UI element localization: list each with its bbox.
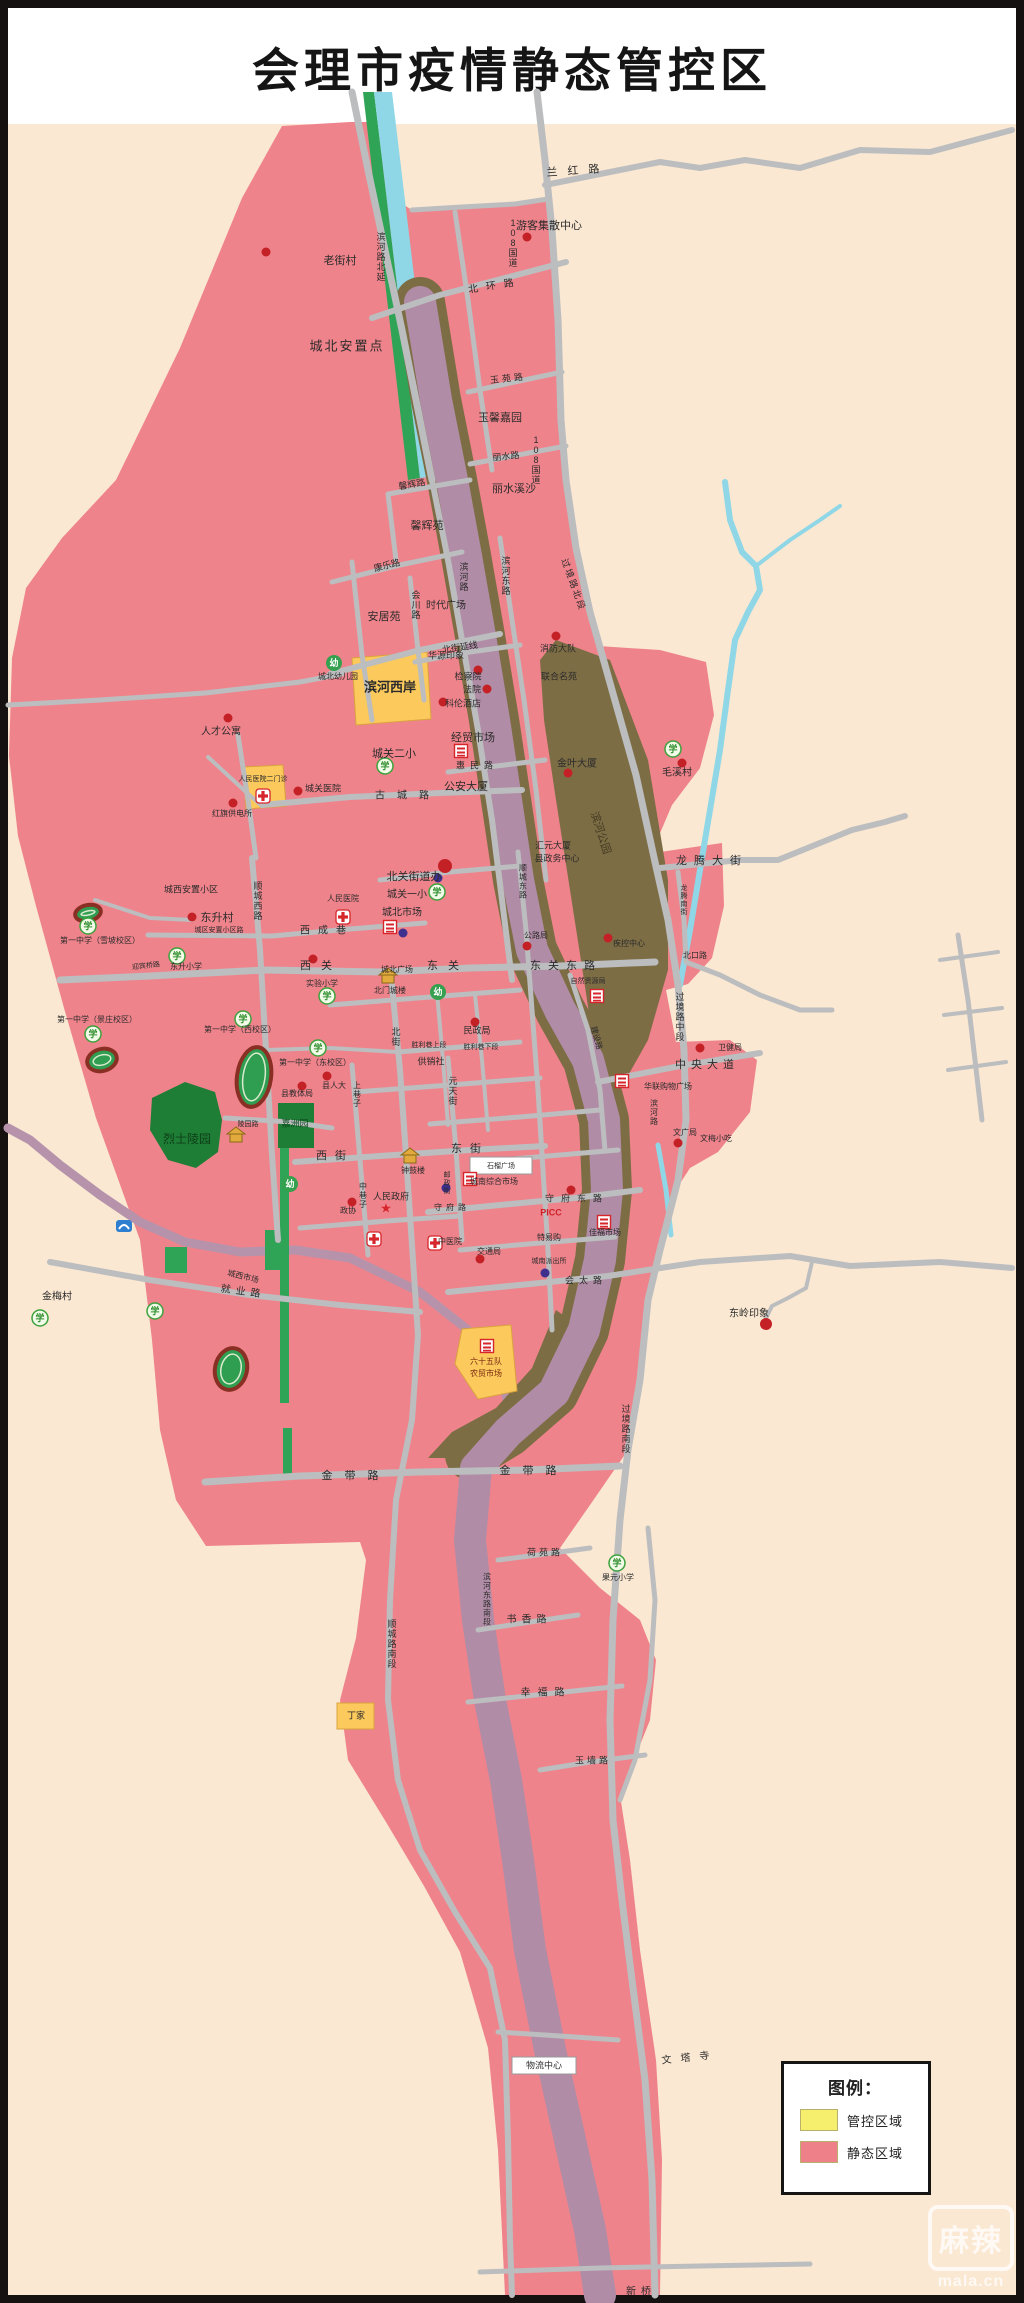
map-label: 华源印象: [428, 649, 464, 660]
map-label: 过境路中段: [675, 991, 684, 1042]
map-label: 新桥: [626, 2285, 656, 2298]
hospital-cross-icon: [261, 791, 264, 801]
map-label: 人民医院: [327, 893, 359, 903]
map-label: 安居苑: [368, 609, 401, 623]
map-label: 学: [313, 1042, 322, 1053]
map-label: 西街: [316, 1148, 354, 1162]
map-label: 学: [322, 990, 331, 1001]
map-label: 东关东路: [530, 958, 602, 972]
map-label: 石榴广场: [487, 1161, 515, 1170]
city-map: 学学学学学学学学学学学学幼幼幼★兰红路游客集散中心老街村城北安置点滨河路北延10…: [0, 0, 1024, 2303]
map-label: 物流中心: [526, 2059, 562, 2070]
map-label: 金叶大厦: [557, 757, 597, 770]
legend-label: 静态区域: [847, 2143, 903, 2162]
map-label: 荷苑路: [527, 1546, 563, 1557]
map-label: 城南派出所: [532, 1256, 567, 1265]
tower-icon: [382, 975, 394, 983]
map-label: 学: [88, 1028, 97, 1039]
market-bar-icon: [386, 931, 394, 933]
map-label: 滨河路: [459, 561, 468, 592]
market-bar-icon: [618, 1082, 626, 1084]
map-label: 东关: [427, 958, 469, 972]
map-label: 经贸市场: [451, 730, 495, 744]
poi-dot: [224, 714, 233, 723]
map-label: 金梅村: [42, 1290, 72, 1303]
map-label: 顺城东路: [519, 864, 527, 900]
map-label: 人才公寓: [201, 725, 241, 738]
market-bar-icon: [593, 993, 601, 995]
poi-dot: [188, 913, 197, 922]
map-label: 学: [83, 920, 92, 931]
map-label: 胜利巷上段: [412, 1040, 447, 1049]
map-label: 县教体局: [281, 1088, 313, 1098]
map-label: 守府东路: [545, 1192, 609, 1203]
tower-icon: [230, 1134, 242, 1142]
map-label: 会太路: [565, 1274, 607, 1285]
road: [148, 935, 272, 936]
market-bar-icon: [593, 1000, 601, 1002]
map-label: 学: [612, 1557, 621, 1568]
market-bar-icon: [483, 1347, 491, 1349]
map-label: 东升村: [201, 910, 234, 924]
map-label: 人民政府: [373, 1190, 409, 1201]
map-label: 城北广场: [381, 964, 413, 974]
map-label: PICC: [540, 1207, 562, 1217]
map-label: 胜利巷下段: [464, 1042, 499, 1051]
poi-dot: [262, 248, 271, 257]
map-label: 东街: [451, 1141, 489, 1155]
map-label: 文广局: [673, 1127, 697, 1137]
poi-dot: [678, 759, 687, 768]
map-label: 丁家: [347, 1709, 365, 1720]
poi-dot: [523, 942, 532, 951]
map-label: 幼: [433, 986, 442, 997]
map-label: 县政务中心: [534, 852, 579, 863]
zone-shape: [165, 1247, 187, 1273]
map-legend: 图例： 管控区域 静态区域: [781, 2061, 931, 2195]
map-label: 城北幼儿园: [318, 671, 358, 681]
map-label: 东升小学: [170, 961, 202, 971]
map-label: 法院: [463, 683, 481, 694]
map-label: 学: [432, 886, 441, 897]
map-label: 第一中学（西校区）: [204, 1024, 276, 1034]
poi-dot: [294, 787, 303, 796]
map-label: 上巷子: [353, 1081, 361, 1108]
market-bar-icon: [483, 1343, 491, 1345]
poi-dot: [483, 685, 492, 694]
map-label: 学: [172, 950, 181, 961]
map-label: 联合名苑: [541, 670, 577, 681]
map-label: 顺城路南段: [387, 1619, 396, 1669]
market-bar-icon: [386, 928, 394, 930]
map-label: 幼: [285, 1178, 294, 1189]
map-label: 钟鼓楼: [401, 1165, 425, 1175]
map-label: 第一中学（雪坡校区）: [60, 935, 140, 945]
map-label: 公路局: [524, 930, 548, 940]
map-label: 文梅小吃: [700, 1133, 732, 1143]
map-label: 老街村: [324, 253, 357, 267]
market-bar-icon: [457, 748, 465, 750]
map-label: 汇元大厦: [535, 839, 571, 850]
map-label: 学: [380, 760, 389, 771]
map-label: 城南综合市场: [470, 1176, 518, 1186]
map-label: 龙腾大街: [676, 853, 748, 867]
hospital-cross-icon: [372, 1234, 375, 1244]
map-label: 书香路: [507, 1613, 552, 1626]
map-label: 滨河路北延: [376, 231, 385, 282]
page: { "title": "会理市疫情静态管控区", "legend": { "ti…: [0, 0, 1024, 2303]
map-label: 西关: [300, 958, 342, 972]
poi-dot: [229, 799, 238, 808]
map-label: 科伦酒店: [445, 697, 481, 708]
map-label: 玉墙路: [575, 1754, 611, 1765]
map-label: 嘉洲园: [281, 1117, 308, 1128]
map-label: 金带路: [500, 1463, 569, 1477]
map-label: 第一中学（东校区）: [279, 1057, 351, 1067]
poi-dot: [323, 1072, 332, 1081]
map-label: 城关一小: [387, 888, 427, 901]
map-label: 政协: [340, 1205, 356, 1215]
tower-icon: [404, 1155, 416, 1163]
map-label: 西成巷: [300, 925, 354, 937]
map-label: 六十五队: [470, 1356, 502, 1366]
map-label: 城北市场: [382, 906, 422, 919]
map-label: 中巷子: [359, 1181, 367, 1209]
map-label: 东岭印象: [729, 1307, 769, 1320]
map-label: 民政局: [463, 1024, 490, 1035]
map-label: 第一中学（景庄校区）: [57, 1014, 137, 1024]
map-label: 果元小学: [602, 1572, 634, 1582]
map-label: 滨河路: [650, 1098, 658, 1126]
map-label: 交通局: [477, 1246, 501, 1256]
market-bar-icon: [483, 1350, 491, 1352]
map-label: 丽水溪沙: [492, 482, 536, 495]
market-bar-icon: [457, 752, 465, 754]
static-zone-swatch: [800, 2141, 838, 2163]
market-bar-icon: [593, 997, 601, 999]
map-label: 守府路: [434, 1202, 470, 1212]
map-label: 城西安置小区: [164, 883, 218, 894]
map-label: 会川路: [411, 589, 420, 620]
map-label: ★: [380, 1200, 392, 1215]
map-label: 滨河西岸: [364, 679, 416, 694]
poi-dot: [564, 769, 573, 778]
map-label: 城区安置小区路: [195, 925, 244, 934]
map-label: 卫健局: [718, 1042, 742, 1052]
map-label: 红旗供电所: [212, 808, 252, 818]
map-label: 实验小学: [306, 978, 338, 988]
map-label: 邮政街: [444, 1170, 451, 1195]
map-label: 学: [668, 743, 677, 754]
map-label: 馨辉苑: [411, 518, 444, 532]
market-bar-icon: [618, 1078, 626, 1080]
map-label: 北关街道办: [387, 869, 442, 883]
zone-shape: [283, 1428, 292, 1478]
poi-dot: [760, 1318, 772, 1330]
map-label: 公安大厦: [444, 779, 488, 793]
legend-item-static: 静态区域: [800, 2141, 928, 2163]
map-label: 游客集散中心: [516, 218, 582, 232]
map-label: 北口路: [683, 950, 707, 960]
map-label: 幸福路: [521, 1686, 572, 1699]
hospital-cross-icon: [433, 1238, 436, 1248]
map-label: 佳福市场: [589, 1227, 621, 1237]
poi-dot: [674, 1139, 683, 1148]
map-label: 学: [150, 1305, 159, 1316]
police-dot: [541, 1269, 550, 1278]
map-label: 惠民路: [456, 759, 498, 770]
map-label: 金带路: [322, 1468, 391, 1482]
map-label: 县人大: [322, 1080, 346, 1090]
map-label: 学: [238, 1013, 247, 1024]
map-label: 顺城西路: [253, 881, 262, 921]
map-label: 北街: [391, 1027, 400, 1047]
map-label: 滨河东路: [501, 555, 510, 596]
market-bar-icon: [600, 1223, 608, 1225]
police-dot: [399, 929, 408, 938]
map-label: 烈士陵园: [163, 1132, 211, 1146]
map-label: 检察院: [454, 670, 481, 681]
market-bar-icon: [618, 1085, 626, 1087]
poi-dot: [523, 233, 532, 242]
map-label: 疾控中心: [613, 938, 645, 948]
market-bar-icon: [386, 924, 394, 926]
hospital-cross-icon: [341, 912, 344, 922]
market-bar-icon: [457, 755, 465, 757]
map-label: 消防大队: [540, 642, 576, 653]
market-bar-icon: [600, 1219, 608, 1221]
map-label: 北门城楼: [374, 985, 406, 995]
map-label: 人民医院二门诊: [239, 774, 288, 783]
map-label: 幼: [329, 657, 338, 668]
poi-dot: [696, 1044, 705, 1053]
control-zone-swatch: [800, 2109, 838, 2131]
map-label: 城关二小: [372, 746, 416, 760]
legend-label: 管控区域: [847, 2111, 903, 2130]
map-label: 学: [35, 1312, 44, 1323]
map-label: 古城路: [375, 789, 441, 802]
map-label: 时代广场: [426, 599, 466, 612]
map-label: 元天街: [448, 1076, 457, 1106]
legend-item-control: 管控区域: [800, 2109, 928, 2131]
map-label: 中央大道: [675, 1057, 739, 1071]
map-label: 城关医院: [305, 782, 341, 793]
map-label: 自然资源局: [571, 976, 606, 985]
map-label: 龙腾南街: [681, 883, 688, 916]
map-label: 供销社: [417, 1055, 444, 1066]
map-label: 滨河东路南段: [483, 1572, 491, 1627]
map-label: 陵园路: [238, 1119, 259, 1128]
poi-dot: [552, 632, 561, 641]
map-label: 过境路南段: [621, 1403, 630, 1454]
map-label: 城北安置点: [309, 338, 384, 353]
map-label: 农贸市场: [470, 1368, 502, 1378]
map-label: 玉馨嘉园: [478, 410, 522, 424]
map-label: 特易购: [537, 1232, 561, 1242]
map-label: 中医院: [438, 1236, 462, 1246]
legend-title: 图例：: [800, 2074, 910, 2099]
poi-dot: [604, 934, 613, 943]
map-label: 毛溪村: [662, 766, 692, 779]
map-label: 华联购物广场: [644, 1081, 692, 1091]
